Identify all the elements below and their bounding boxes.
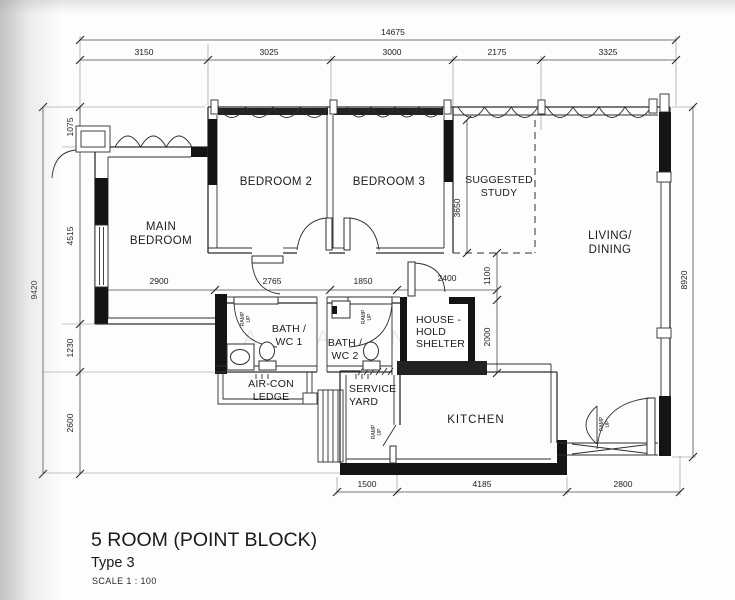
room-label-bath-wc1: BATH /: [272, 323, 306, 335]
room-label-aircon-ledge: LEDGE: [253, 391, 290, 403]
dim-overall-width: 14675: [381, 27, 405, 37]
window-ledge: [218, 108, 328, 115]
window-living-right: [657, 172, 671, 182]
corner-window-arc: [52, 150, 76, 178]
door-bedroom3: [344, 218, 379, 250]
room-label-suggested-study: STUDY: [481, 187, 518, 199]
ramp-up-label: UP: [605, 420, 611, 428]
dim-top-segment: 3000: [383, 47, 402, 57]
plan-subtitle: Type 3: [91, 555, 135, 571]
room-label-service-yard: SERVICE: [349, 383, 396, 395]
dim-bottom-segment: 2800: [614, 479, 633, 489]
toilet-icon: [363, 342, 380, 370]
dim-study-to-shelter: 1100: [482, 267, 492, 286]
vent-grille: [318, 390, 343, 462]
door-bedroom2: [297, 218, 332, 250]
dim-hall-b: 1850: [354, 276, 373, 286]
floor-plan-page: A A N G: [0, 0, 735, 600]
dim-left-segment: 2600: [65, 413, 75, 432]
dim-left-segment: 1075: [65, 117, 75, 136]
bottom-wall: [340, 463, 567, 475]
dim-left-total: 9420: [29, 280, 39, 299]
ramp-up-label: UP: [246, 315, 252, 323]
room-label-household-shelter: SHELTER: [416, 338, 465, 350]
room-label-bedroom3: BEDROOM 3: [353, 176, 426, 188]
plan-scale: SCALE 1 : 100: [92, 576, 157, 586]
window-study-top: [458, 107, 538, 118]
dim-hall-c: 2400: [438, 273, 457, 283]
room-label-main-bedroom: MAIN: [146, 221, 176, 233]
room-label-bath-wc2: BATH /: [328, 337, 362, 349]
door-main-entrance: RAMP UP: [586, 398, 655, 455]
room-label-kitchen: KITCHEN: [447, 414, 504, 426]
window-main-bedroom-top: [115, 136, 192, 147]
main-bedroom-walls: [52, 126, 215, 324]
dim-bottom-segment: 4185: [473, 479, 492, 489]
plan-title: 5 ROOM (POINT BLOCK): [91, 529, 317, 551]
room-label-bedroom2: BEDROOM 2: [240, 176, 313, 188]
title-block: 5 ROOM (POINT BLOCK) Type 3 SCALE 1 : 10…: [91, 529, 317, 586]
dimension-labels: 14675 3150 3025 3000 2175 3325 9420 1075…: [29, 27, 689, 489]
room-label-household-shelter: HOLD: [416, 326, 446, 338]
room-label-aircon-ledge: AIR-CON: [248, 378, 294, 390]
room-label-service-yard: YARD: [349, 396, 378, 408]
dim-right-total: 8920: [679, 270, 689, 289]
room-label-bath-wc2: WC 2: [331, 350, 358, 362]
dim-left-segment: 4515: [65, 226, 75, 245]
room-label-household-shelter: HOUSE -: [416, 314, 461, 326]
dim-shelter-depth: 2000: [482, 327, 492, 346]
dim-top-segment: 3325: [599, 47, 618, 57]
dim-top-segment: 2175: [488, 47, 507, 57]
dim-left-segment: 1230: [65, 338, 75, 357]
door-hall: [252, 256, 283, 294]
shower-icon: [332, 301, 350, 318]
top-wall-windows: [208, 94, 670, 118]
room-label-suggested-study: SUGGESTED: [465, 174, 533, 186]
window-main-bedroom-left: [95, 225, 108, 287]
dim-main-bedroom-width: 2900: [150, 276, 169, 286]
room-label-main-bedroom: BEDROOM: [130, 235, 192, 247]
dim-bottom-segment: 1500: [358, 479, 377, 489]
right-wall: [657, 107, 671, 456]
sink-icon: [227, 344, 254, 370]
ramp-up-label: UP: [377, 428, 383, 436]
dim-hall-a: 2765: [263, 276, 282, 286]
ramp-up-label: UP: [367, 313, 373, 321]
dim-top-segment: 3025: [260, 47, 279, 57]
toilet-icon: [259, 342, 276, 370]
entrance-ramp-strip: [557, 443, 658, 455]
window-living-top: [547, 107, 651, 118]
window-living-right: [657, 328, 671, 338]
floor-plan-drawing: A A N G: [0, 0, 735, 600]
dim-top-segment: 3150: [135, 47, 154, 57]
room-label-living-dining: LIVING/: [588, 230, 632, 242]
room-label-bath-wc1: WC 1: [275, 336, 302, 348]
door-service-yard: RAMP UP: [371, 424, 396, 463]
room-label-living-dining: DINING: [589, 244, 632, 256]
